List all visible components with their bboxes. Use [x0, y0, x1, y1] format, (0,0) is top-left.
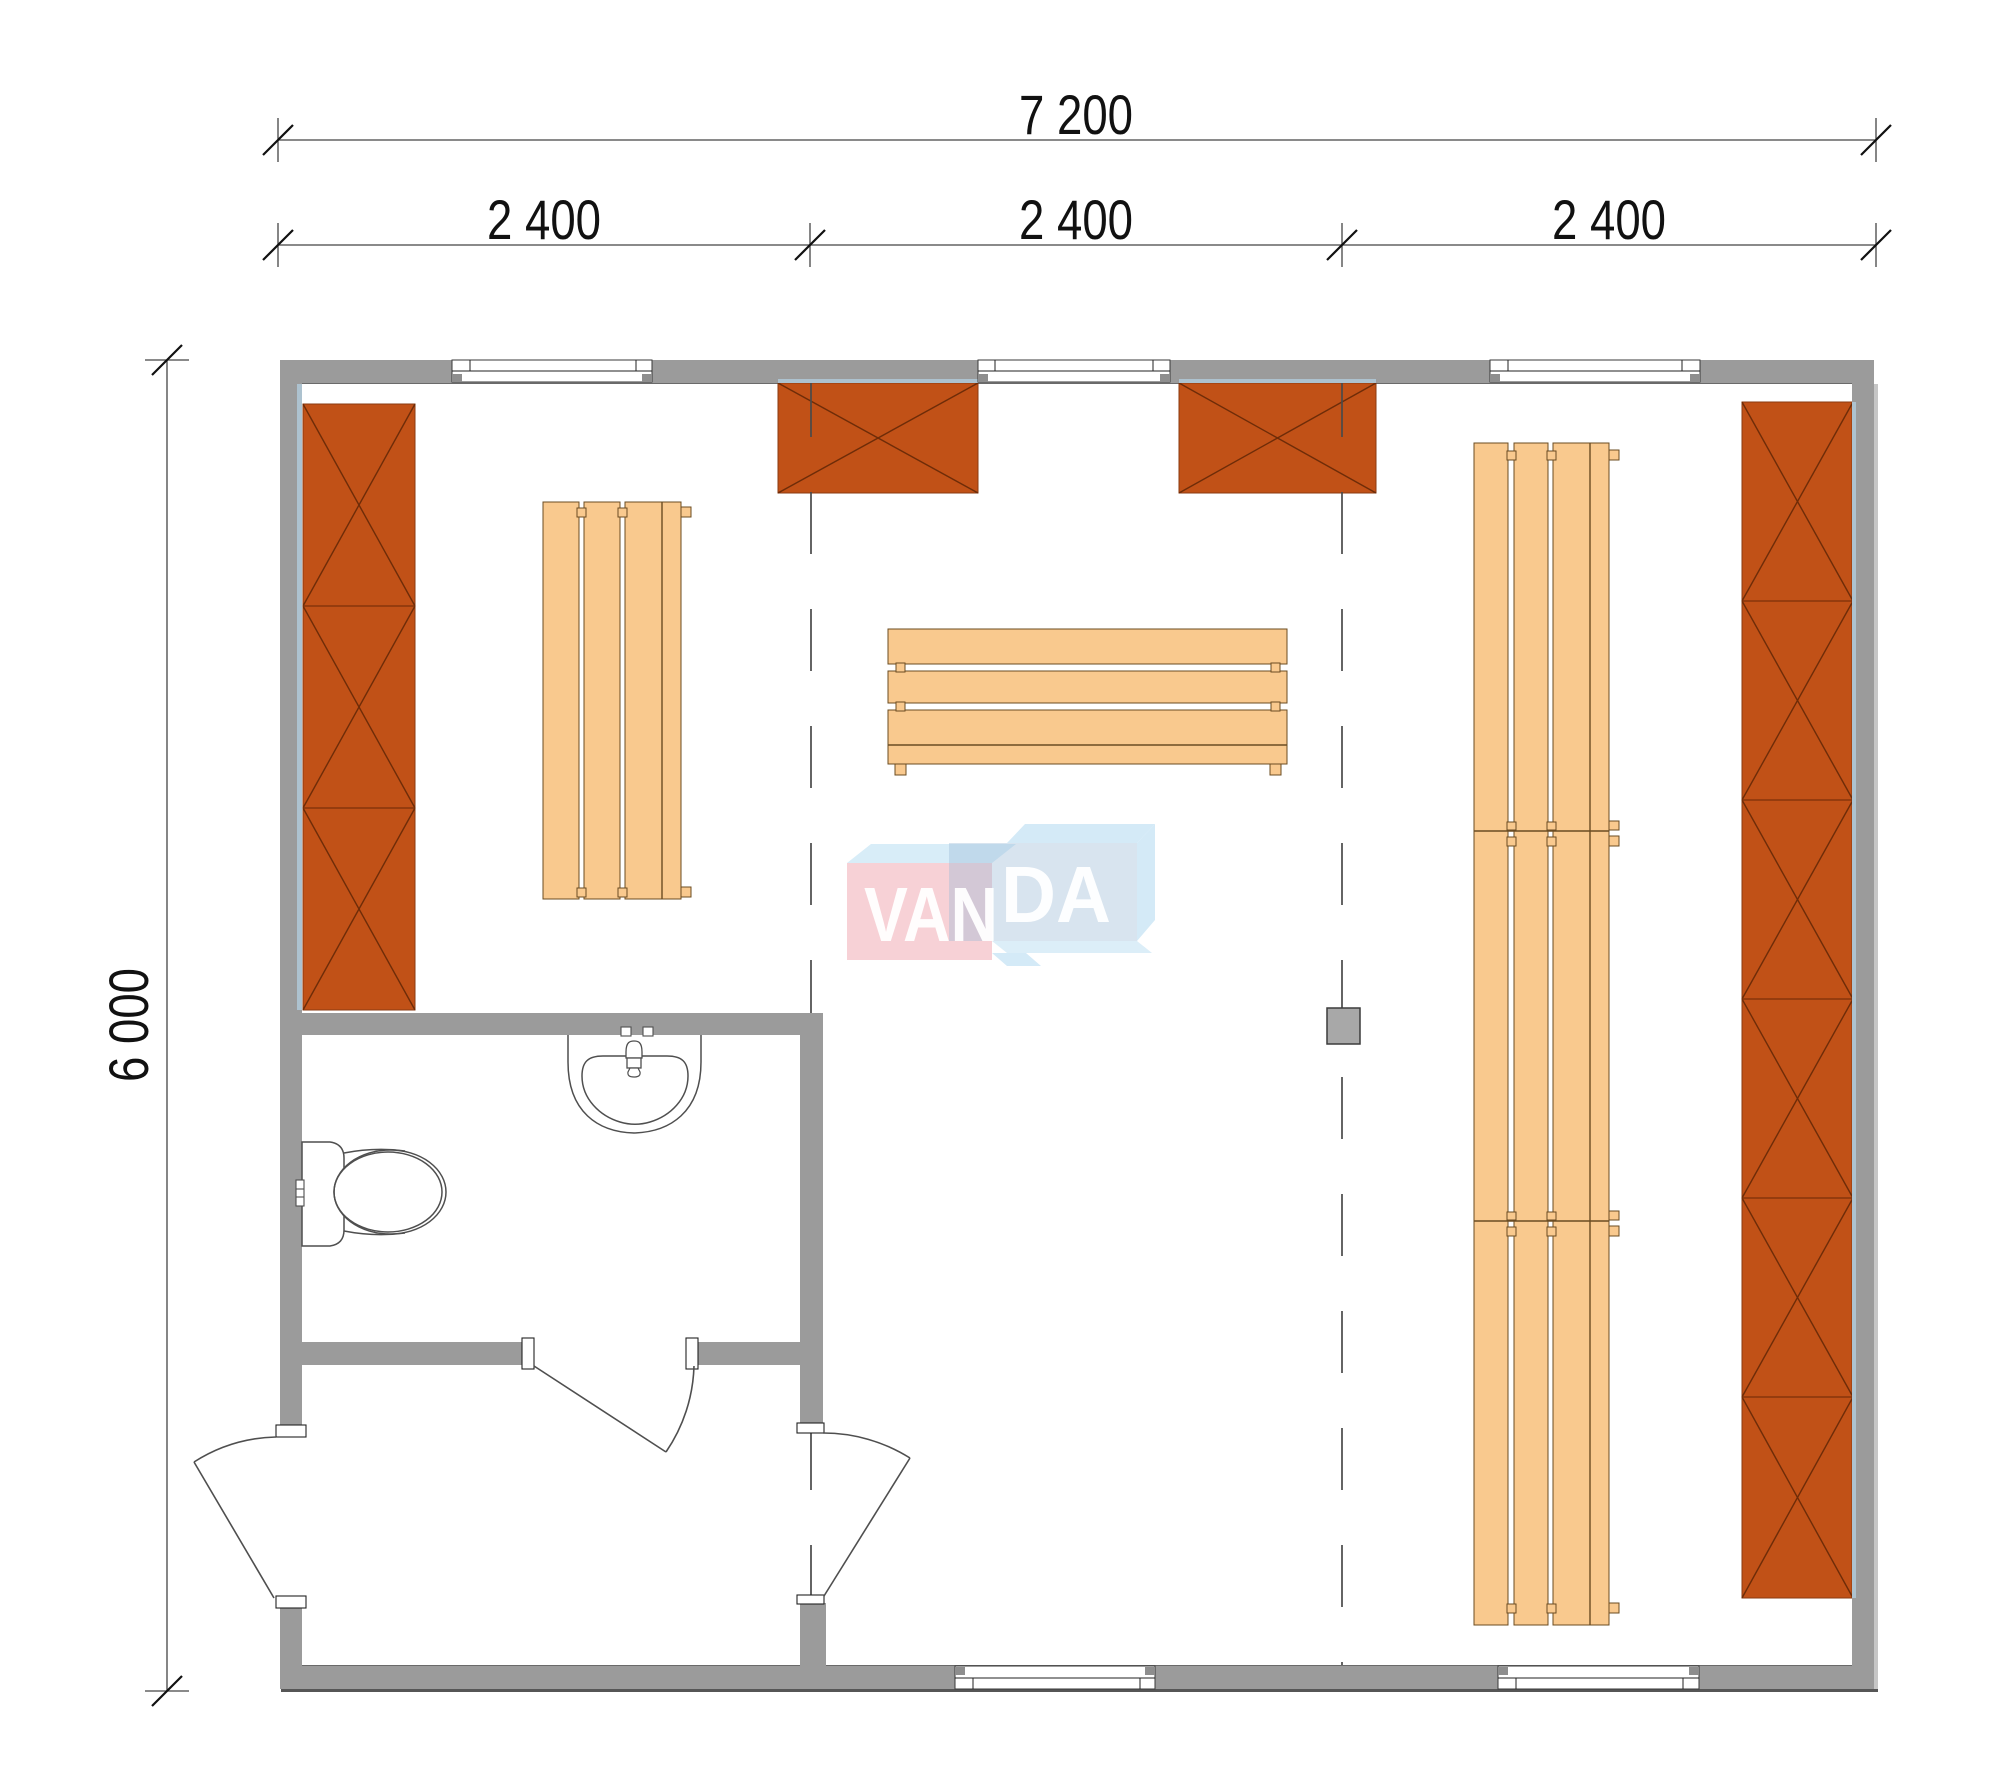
- svg-text:VAN: VAN: [864, 872, 998, 958]
- svg-text:2 400: 2 400: [1552, 188, 1666, 251]
- svg-text:DA: DA: [1001, 850, 1111, 939]
- svg-text:2 400: 2 400: [487, 188, 601, 251]
- svg-text:7 200: 7 200: [1019, 83, 1133, 146]
- svg-text:2 400: 2 400: [1019, 188, 1133, 251]
- svg-text:6 000: 6 000: [97, 968, 160, 1082]
